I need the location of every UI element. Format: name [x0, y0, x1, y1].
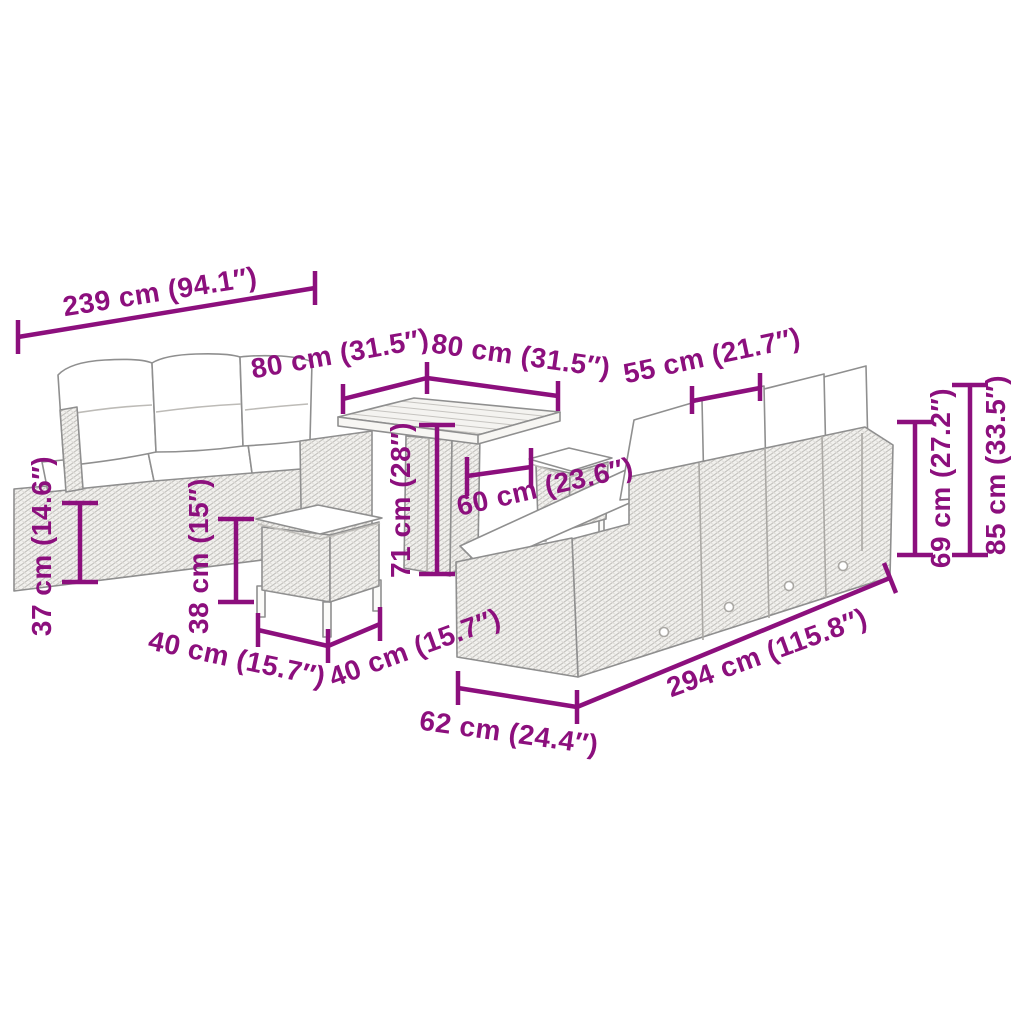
- dim-label-base-height: 37 cm (14.6″): [26, 456, 58, 636]
- sofa-right-chaise: [456, 538, 578, 677]
- dim-label-total-height: 85 cm (33.5″): [980, 375, 1012, 555]
- furniture-line-art: [0, 0, 1024, 1024]
- dimension-diagram: 239 cm (94.1″) 80 cm (31.5″) 80 cm (31.5…: [0, 0, 1024, 1024]
- sofa-left-back-cushion: [152, 354, 243, 452]
- dim-label-table-height: 71 cm (28″): [385, 422, 417, 578]
- sofa-right-fitting: [839, 562, 848, 571]
- dim-label-stool-height: 38 cm (15″): [183, 478, 215, 634]
- dim-line-chaise-depth: [458, 671, 577, 707]
- dim-label-seat-back-height: 69 cm (27.2″): [925, 388, 957, 568]
- sofa-right-fitting: [725, 603, 734, 612]
- sofa-right-fitting: [785, 582, 794, 591]
- sofa-right-fitting: [660, 628, 669, 637]
